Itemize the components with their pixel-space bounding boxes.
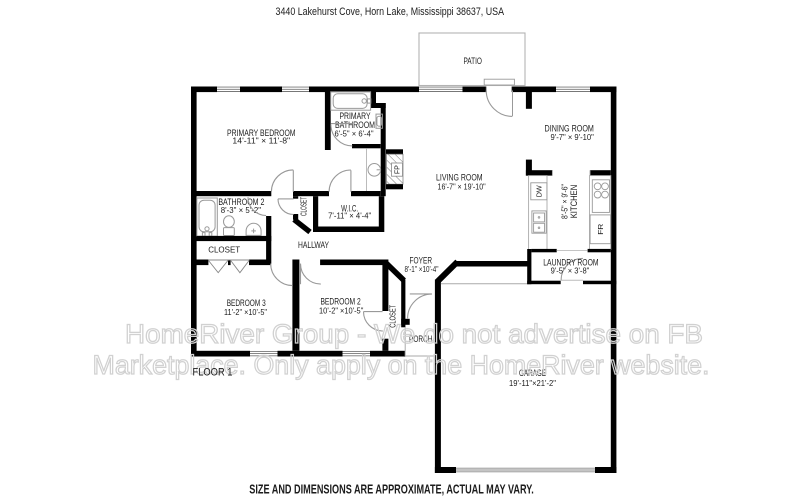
svg-text:8'-5" × 9'-6": 8'-5" × 9'-6" [559, 184, 569, 219]
svg-text:DW: DW [534, 184, 543, 197]
svg-text:CLOSET: CLOSET [300, 197, 309, 216]
svg-text:FP: FP [395, 165, 402, 174]
svg-text:HALLWAY: HALLWAY [298, 240, 329, 250]
svg-text:SIZE AND DIMENSIONS ARE APPROX: SIZE AND DIMENSIONS ARE APPROXIMATE, ACT… [249, 481, 534, 496]
svg-text:CLOSET: CLOSET [208, 245, 240, 255]
svg-text:KITCHEN: KITCHEN [569, 185, 579, 219]
svg-text:FR: FR [596, 223, 605, 235]
svg-text:3440 Lakehurst Cove, Horn Lake: 3440 Lakehurst Cove, Horn Lake, Mississi… [276, 6, 505, 18]
svg-text:Marketplace. Only apply on the: Marketplace. Only apply on the HomeRiver… [93, 350, 710, 380]
svg-text:11'-2" ×10'-5": 11'-2" ×10'-5" [224, 307, 267, 317]
svg-text:7'-11" × 4'-4": 7'-11" × 4'-4" [328, 211, 371, 221]
svg-text:9'-5" × 3'-8": 9'-5" × 3'-8" [551, 265, 590, 275]
svg-text:8'-1" ×10'-4": 8'-1" ×10'-4" [405, 264, 439, 274]
svg-text:FLOOR 1: FLOOR 1 [193, 367, 233, 379]
svg-text:6'-5" × 6'-4": 6'-5" × 6'-4" [334, 128, 373, 138]
svg-text:14'-11" × 11'-8": 14'-11" × 11'-8" [232, 136, 290, 146]
svg-text:8'-3" × 5'-2": 8'-3" × 5'-2" [221, 205, 261, 215]
svg-text:9'-7" × 9'-10": 9'-7" × 9'-10" [551, 132, 594, 142]
svg-text:10'-2" ×10'-5": 10'-2" ×10'-5" [319, 306, 363, 316]
svg-text:16'-7" × 19'-10": 16'-7" × 19'-10" [438, 182, 486, 192]
svg-text:PATIO: PATIO [463, 56, 482, 66]
svg-text:HomeRiver Group - We do not ad: HomeRiver Group - We do not advertise on… [125, 319, 703, 349]
